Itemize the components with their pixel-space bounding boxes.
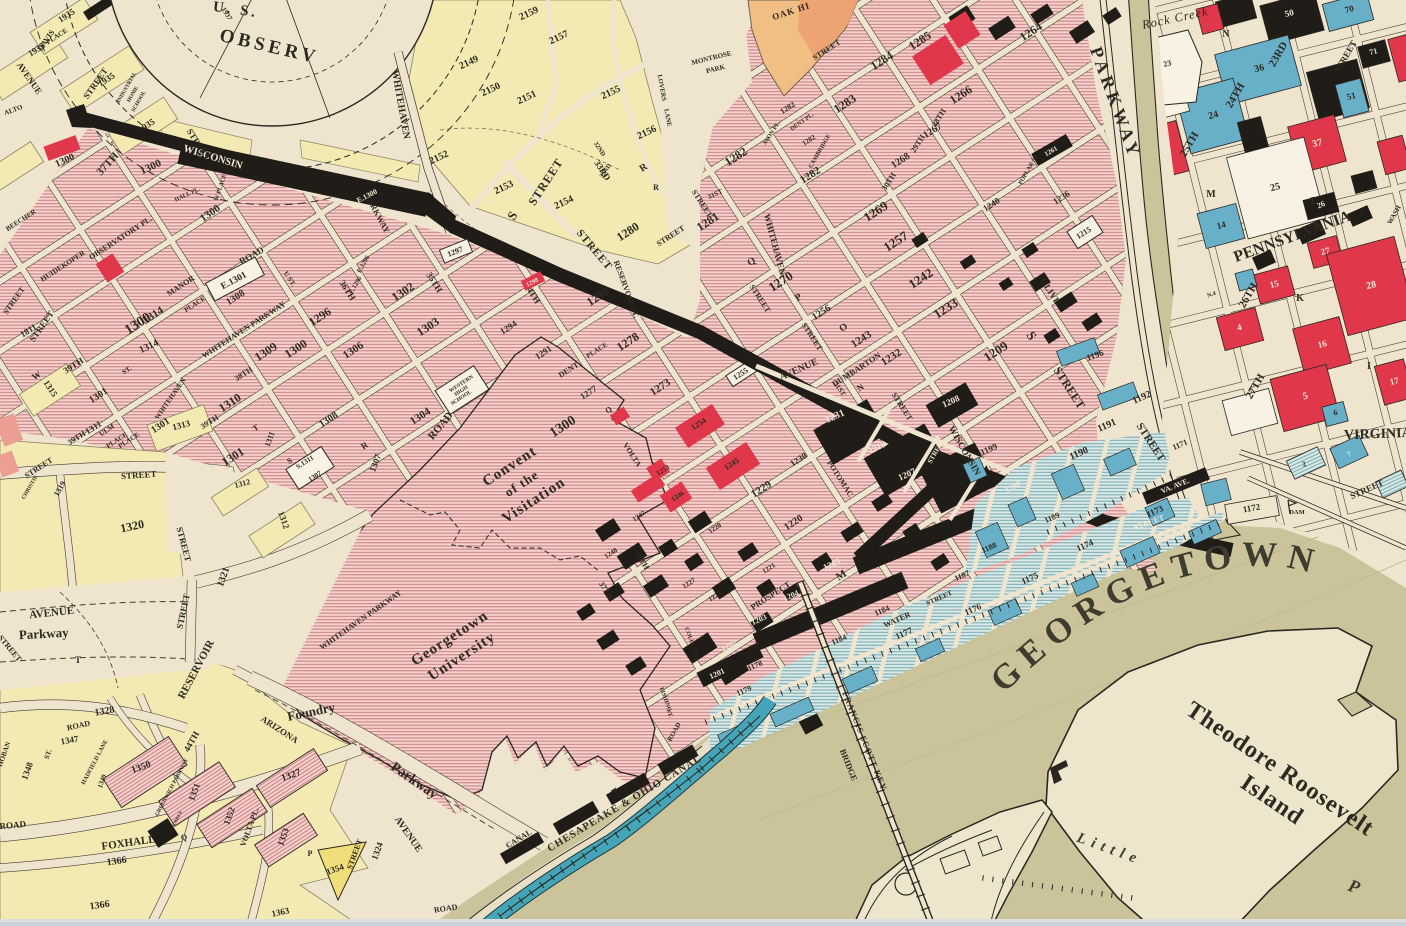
svg-text:Parkway: Parkway [18, 625, 69, 643]
svg-text:DAM: DAM [1289, 509, 1305, 516]
svg-text:P: P [308, 849, 313, 858]
svg-text:M: M [1206, 189, 1216, 200]
svg-text:R: R [653, 183, 659, 192]
svg-text:I: I [1367, 361, 1371, 372]
svg-text:VIRGINIA: VIRGINIA [1344, 426, 1406, 443]
svg-text:T: T [75, 655, 81, 665]
svg-text:Q: Q [181, 833, 187, 842]
svg-text:N: N [1222, 29, 1230, 40]
svg-text:K: K [1296, 293, 1304, 304]
